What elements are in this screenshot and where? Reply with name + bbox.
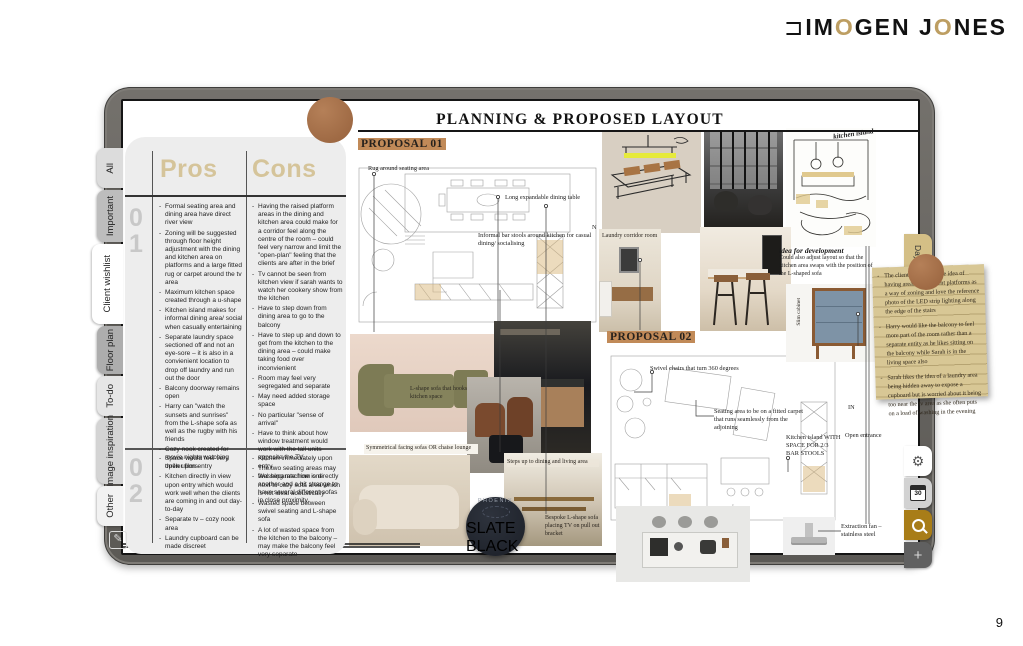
calendar-icon: 30: [910, 485, 926, 501]
sticky-note-list: The clients really like the idea of havi…: [877, 269, 984, 419]
window-grid: [710, 131, 777, 189]
beige-sofa-photo: [349, 455, 470, 546]
calendar-day: 30: [911, 491, 925, 498]
pros-list-02: Space would feel very open upon entryKit…: [158, 455, 243, 553]
tab-label: To-do: [105, 384, 116, 408]
laundry-photo-label: Laundry corridor room: [602, 233, 658, 241]
annotation-swivel-chairs: Swivel chairs that turn 360 degrees: [650, 365, 765, 373]
idea-development-note: idea for development Could also adjust l…: [779, 246, 883, 278]
card-divider: [152, 151, 153, 543]
compass-n-marker: N: [592, 224, 597, 232]
pros-header: Pros: [160, 155, 218, 184]
tab-label: Other: [105, 494, 116, 518]
idea-note-title: idea for development: [779, 246, 883, 255]
bespoke-sofa-label: Bespoke L-shape sofa placing TV on pull …: [545, 515, 607, 538]
logo-text: NES: [954, 14, 1007, 40]
list-item: Have to step up and down to get from the…: [251, 332, 343, 373]
paint-swatch-badge: PHOENIX SLATE BLACK: [466, 497, 525, 556]
proposal-02-label: PROPOSAL 02: [607, 331, 695, 343]
gear-icon: ⚙: [912, 453, 925, 470]
sidebar-tab-image-inspiration[interactable]: Image inspiration: [97, 418, 123, 484]
tab-label: Client wishlist: [102, 255, 113, 313]
list-item: May need added storage space: [251, 393, 343, 409]
tab-label: Important: [105, 196, 116, 236]
annotation-dining-table: Long expandable dining table: [505, 194, 603, 202]
list-item: Kitchen immediately upon entry: [251, 455, 343, 471]
kitchen-island-sketch-image: [786, 128, 876, 247]
section-number-01: 01: [129, 205, 147, 258]
annotation-bar-stools: Informal bar stools around kitchen for c…: [478, 232, 598, 248]
cons-header: Cons: [252, 155, 317, 184]
list-item: Tv cannot be seen from kitchen view if s…: [251, 271, 343, 304]
window-seating-photo: [704, 131, 783, 229]
list-item: Room may feel very segregated and separa…: [251, 375, 343, 391]
card-divider: [246, 151, 247, 543]
cons-list-02: Kitchen immediately upon entryWashing ma…: [251, 455, 343, 561]
card-header-rule: [125, 195, 346, 197]
compose-icon[interactable]: ✎: [109, 531, 127, 549]
list-item: Washing machine is directly next to cozy…: [251, 473, 343, 498]
idea-note-body: Could also adjust layout so that the kit…: [779, 255, 879, 278]
list-item: Laundry cupboard can be made discreet: [158, 535, 243, 551]
annotation-kitchen-island: Kitchen island WITH SPACE FOR 2/3 BAR ST…: [786, 434, 842, 459]
pros-cons-card: Pros Cons 01 Formal seating area and din…: [125, 137, 346, 554]
annotation-extraction-fan: Extraction fan – stainless steel: [841, 523, 891, 539]
sidebar-tab-other[interactable]: Other: [97, 486, 123, 526]
title-underline: [358, 130, 918, 132]
brown-dot-sticker: [908, 254, 944, 290]
steps-up-label: Steps up to dining and living area: [507, 459, 599, 467]
paint-badge-name: PHOENIX: [478, 498, 513, 504]
list-item: Wasted space between swivel seating and …: [251, 500, 343, 525]
settings-button[interactable]: ⚙: [904, 446, 932, 476]
annotation-open-entrance: Open entrance: [845, 432, 887, 440]
list-item: Separate laundry space sectioned off and…: [158, 334, 243, 383]
list-item: Harry would like the balcony to feel mor…: [879, 320, 982, 368]
page-number: 9: [996, 615, 1003, 630]
search-button[interactable]: [904, 510, 932, 540]
proposal-01-label: PROPOSAL 01: [358, 138, 446, 150]
page-title: PLANNING & PROPOSED LAYOUT: [380, 111, 780, 129]
laundry-corridor-photo: Laundry corridor room: [599, 229, 661, 332]
list-item: Kitchen island makes for informal dining…: [158, 307, 243, 332]
logo-text: O: [835, 14, 855, 40]
list-item: Separate tv – cozy nook area: [158, 516, 243, 532]
list-item: Maximum kitchen space created through a …: [158, 289, 243, 305]
list-item: Formal seating area and dining area have…: [158, 203, 243, 228]
brand-logo: ⊐IMOGEN JONES: [784, 14, 1007, 41]
tab-label: Image inspiration: [105, 415, 116, 487]
logo-mark-icon: ⊐: [784, 14, 805, 40]
list-item: Sarah likes the idea of a laundry area b…: [880, 372, 983, 420]
pros-list-01: Formal seating area and dining area have…: [158, 203, 243, 473]
list-item: Harry can "watch the sunsets and sunrise…: [158, 403, 243, 444]
sidebar-tab-floor-plan[interactable]: Floor plan: [97, 326, 123, 374]
list-item: Zoning will be suggested through floor h…: [158, 230, 243, 287]
sidebar-tab-to-do[interactable]: To-do: [97, 376, 123, 416]
section-number-02: 02: [129, 455, 147, 508]
slim-cabinet-photo: Slim cabinet: [786, 284, 875, 362]
overhead-kitchen-island-photo: [616, 506, 750, 582]
bar-stools-photo: [700, 227, 791, 331]
list-item: Balcony doorway remains open: [158, 385, 243, 401]
app-page: ⊐IMOGEN JONES: [0, 0, 1023, 646]
logo-text: O: [934, 14, 954, 40]
list-item: Have to step down from dining area to go…: [251, 305, 343, 330]
list-item: Space would feel very open upon entry: [158, 455, 243, 471]
slim-cabinet-label: Slim cabinet: [796, 298, 803, 326]
logo-text: IM: [805, 14, 835, 40]
dining-table-sketch-image: [602, 131, 701, 233]
calendar-button[interactable]: 30: [904, 478, 932, 508]
annotation-seating-carpet: Seating area to be on a fitted carpet th…: [714, 408, 806, 433]
sidebar-tab-important[interactable]: Important: [97, 190, 123, 242]
list-item: Kitchen directly in view upon entry whic…: [158, 473, 243, 514]
in-marker: IN: [848, 404, 855, 412]
symmetrical-sofas-label: Symmetrical facing sofas OR chaise loung…: [364, 444, 478, 454]
sidebar-tab-all[interactable]: All: [97, 148, 123, 188]
logo-text: GEN J: [855, 14, 934, 40]
list-item: Having the raised platform areas in the …: [251, 203, 343, 269]
sidebar-tab-client-wishlist[interactable]: Client wishlist: [92, 244, 123, 324]
add-button[interactable]: +: [904, 542, 932, 568]
annotation-rug: Rug around seating area: [368, 165, 452, 173]
list-item: A lot of wasted space from the kitchen t…: [251, 527, 343, 560]
tab-label: Floor plan: [105, 329, 116, 371]
extraction-fan-photo: [783, 517, 835, 555]
search-icon: [912, 519, 925, 532]
list-item: No particular "sense of arrival": [251, 412, 343, 428]
paint-badge-color: SLATE BLACK: [466, 520, 525, 556]
plus-icon: +: [914, 548, 923, 563]
tab-label: All: [105, 163, 116, 174]
brown-dot-sticker: [307, 97, 353, 143]
